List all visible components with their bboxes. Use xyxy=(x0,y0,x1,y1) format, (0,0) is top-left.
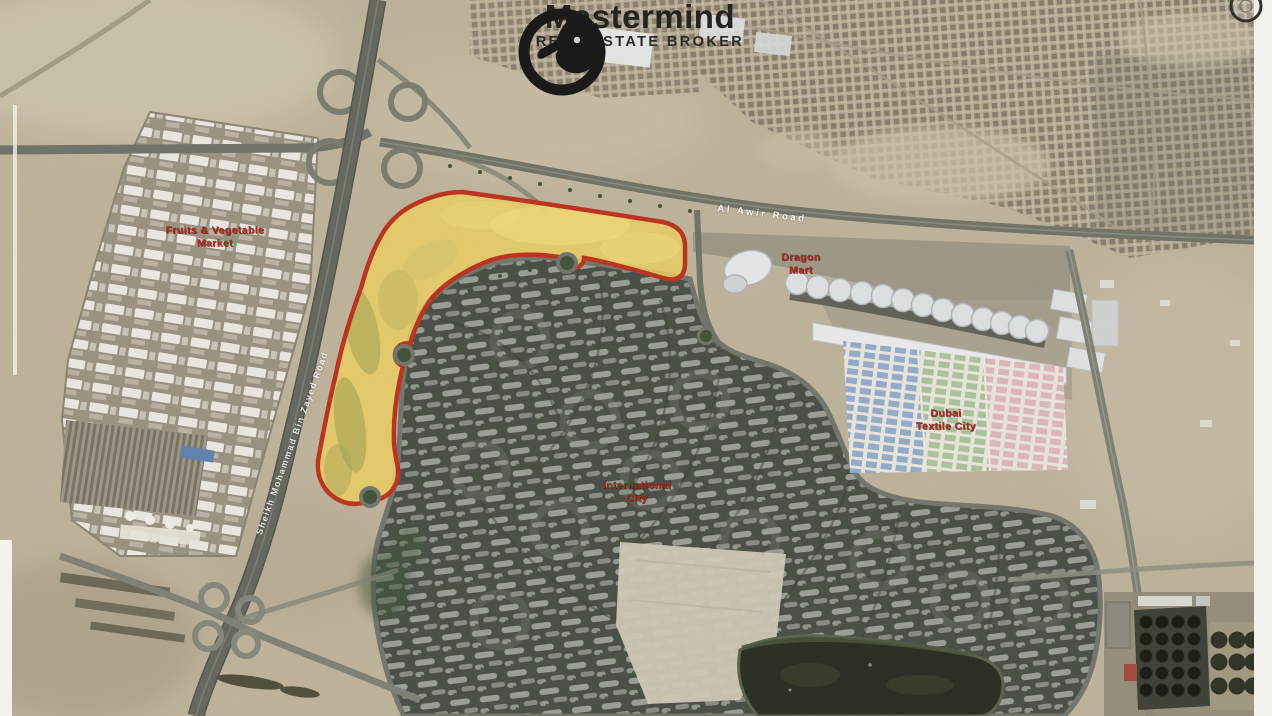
label-fruits-vegetable-market: Fruits & Vegetable Market xyxy=(166,225,265,250)
satellite-map-image: Mastermind REAL ESTATE BROKER Fruits & V… xyxy=(0,0,1272,716)
label-dubai-textile-city: Dubai Textile City xyxy=(916,408,976,433)
label-international-city: International City xyxy=(603,480,671,505)
falcon-swoosh-icon xyxy=(510,4,614,100)
label-dragon-mart: Dragon Mart xyxy=(781,252,820,277)
map-canvas xyxy=(0,0,1272,716)
mastermind-logo: Mastermind REAL ESTATE BROKER xyxy=(510,4,770,50)
grain-overlay xyxy=(0,0,1272,716)
